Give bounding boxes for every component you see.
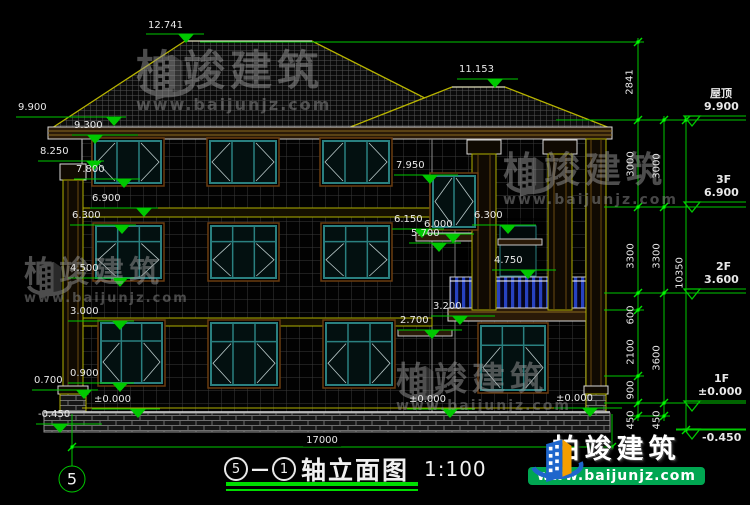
floor-name-label: 3F — [716, 174, 731, 186]
elevation-label: 0.700 — [34, 376, 63, 387]
elevation-label: ±0.000 — [556, 394, 593, 405]
elevation-label: 6.300 — [474, 211, 503, 222]
floor-name-label: 1F — [714, 373, 729, 385]
elevation-label: 6.150 — [394, 215, 423, 226]
dimension-label: 450 — [626, 410, 637, 429]
title-separator: — — [251, 459, 269, 480]
elevation-label: 2.700 — [400, 316, 429, 327]
axis-bubble-number: 5 — [67, 470, 77, 489]
title-text: 轴立面图 — [301, 451, 409, 487]
elevation-label: 3.000 — [70, 307, 99, 318]
elevation-label: 9.900 — [18, 103, 47, 114]
floor-elevation-label: 9.900 — [704, 101, 739, 113]
total-dimension-label: 17000 — [303, 436, 341, 447]
elevation-label: ±0.000 — [94, 395, 131, 406]
elevation-label: ±0.000 — [409, 395, 446, 406]
title-underline-thin — [226, 489, 418, 491]
elevation-label: 5.700 — [411, 229, 440, 240]
elevation-label: 6.900 — [92, 194, 121, 205]
dimension-label: 10350 — [675, 257, 686, 289]
elevation-label: 6.300 — [72, 211, 101, 222]
elevation-label: 7.800 — [76, 165, 105, 176]
axis-start-bubble: 5 — [224, 457, 248, 481]
dimension-label: 900 — [626, 380, 637, 399]
elevation-label: 8.250 — [40, 147, 69, 158]
floor-name-label: 屋顶 — [710, 88, 732, 100]
elevation-label: 3.200 — [433, 302, 462, 313]
floor-elevation-label: 6.900 — [704, 187, 739, 199]
elevation-label: 0.900 — [70, 369, 99, 380]
dimension-label: 3300 — [652, 243, 663, 268]
title-scale: 1:100 — [424, 457, 487, 481]
dimension-label: 2100 — [626, 339, 637, 364]
brand-logo-icon — [528, 435, 586, 493]
brand-logo: 柏竣建筑 www.baijunjz.com — [528, 435, 705, 485]
elevation-label: 7.950 — [396, 161, 425, 172]
elevation-label: 9.300 — [74, 121, 103, 132]
right-pilaster — [584, 139, 608, 412]
floor-elevation-label: -0.450 — [702, 432, 741, 444]
ground — [44, 408, 610, 432]
dimension-label: 3600 — [652, 345, 663, 370]
elevation-label: 4.750 — [494, 256, 523, 267]
drawing-title: 5 — 1 轴立面图 1:100 — [224, 451, 487, 487]
elevation-label: -0.450 — [38, 410, 70, 421]
floor-elevation-label: 3.600 — [704, 274, 739, 286]
terrace-door — [500, 226, 536, 276]
elevation-label: 4.500 — [70, 264, 99, 275]
cad-elevation-screenshot: 柏竣建筑 www.baijunjz.com 柏竣建筑 www.baijunjz.… — [0, 0, 750, 505]
dimension-label: 450 — [652, 410, 663, 429]
floor-name-label: 2F — [716, 261, 731, 273]
dimension-label: 3000 — [652, 153, 663, 178]
eave-cornice — [48, 127, 612, 139]
dimension-label: 2841 — [625, 69, 636, 94]
elevation-drawing — [0, 0, 750, 505]
elevation-label: 11.153 — [459, 65, 494, 76]
elevation-label: 12.741 — [148, 21, 183, 32]
dimension-label: 3000 — [626, 151, 637, 176]
floor-elevation-label: ±0.000 — [698, 386, 742, 398]
dimension-label: 600 — [626, 305, 637, 324]
axis-end-bubble: 1 — [272, 457, 296, 481]
dimension-label: 3300 — [626, 243, 637, 268]
